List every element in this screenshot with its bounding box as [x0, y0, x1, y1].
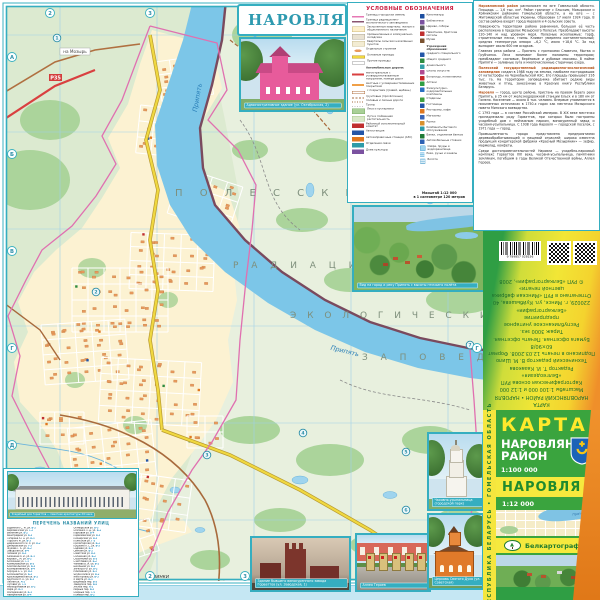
svg-text:Б: Б	[10, 152, 14, 158]
legend-item: Музеи	[420, 39, 468, 44]
photo-caption: Административное здание (ул. Октябрьская…	[244, 102, 342, 108]
district-description-panel: Наровлянский район расположен на юге Гом…	[473, 0, 600, 231]
svg-text:Р35: Р35	[50, 76, 61, 82]
svg-text:2: 2	[94, 290, 97, 296]
memorial-stela	[417, 553, 426, 571]
legend-swatch	[352, 56, 365, 59]
legend-swatch	[352, 116, 365, 122]
legend-item: среднего специального	[420, 53, 468, 58]
town-scale: 1:12 000	[502, 500, 534, 508]
svg-text:2: 2	[148, 574, 152, 580]
cover-town-title: НАРОВЛЯ	[502, 480, 581, 495]
paragraph: Среди достопримечательностей Наровли — у…	[479, 149, 595, 164]
imprint-line: «Белкартография»	[487, 306, 596, 313]
legend-swatch	[352, 74, 364, 76]
legend-swatch	[352, 34, 365, 40]
legend-icon	[420, 109, 425, 114]
belltower-dome	[451, 445, 459, 451]
legend-icon	[420, 20, 425, 25]
legend-swatch	[352, 109, 365, 115]
imprint-line: Масштабы 1:100 000 и 1:12 000	[487, 385, 596, 392]
legend-item: Автозаправочные станции (АЗС)	[352, 136, 416, 141]
photo-brick-ruins: Здание бывшего винокуренного завода Горв…	[250, 536, 351, 592]
photo-belltower: Часовня-усыпальница (городской парк)	[427, 432, 484, 511]
legend-icon	[420, 140, 425, 145]
description-text: Наровлянский район расположен на юге Гом…	[474, 1, 599, 230]
cross-icon	[455, 440, 457, 445]
belltower-top	[450, 449, 463, 463]
legend-swatch	[352, 27, 365, 33]
legend-icon	[420, 103, 425, 108]
legend-item: Учреждения образования:	[420, 44, 468, 51]
svg-text:7: 7	[468, 343, 471, 349]
svg-text:1: 1	[55, 36, 58, 42]
building-roof	[255, 63, 323, 73]
legend-swatch	[352, 48, 364, 53]
legend-item: Отделения связи	[352, 143, 416, 148]
legend-swatch	[352, 84, 364, 86]
legend-item: Кинотеатры	[420, 14, 468, 19]
legend-icon	[420, 26, 425, 31]
aerial-lake	[455, 232, 478, 239]
legend-right-column: Кинотеатры Библиотеки Церкви, соборы Пам…	[420, 14, 468, 165]
belltower-mid	[449, 460, 465, 479]
legend-swatch	[352, 41, 365, 47]
street-index-panel: Усадебный дом Горваттов — памятник архит…	[3, 468, 139, 597]
map-cover: 9 789857 028156 КАРТАНАРОВЛЯНСКИЙ РАЙОН …	[483, 231, 600, 600]
svg-text:на Мозырь: на Мозырь	[63, 49, 87, 54]
region-spine: РЕСПУБЛИКА БЕЛАРУСЬ • ГОМЕЛЬСКАЯ ОБЛАСТЬ	[483, 410, 496, 600]
legend-swatch	[352, 137, 364, 142]
svg-text:Д: Д	[10, 443, 15, 449]
legend-item: Больницы, поликлиники	[420, 76, 468, 81]
paragraph: Полесский государственный радиационно-эк…	[479, 67, 595, 90]
legend-swatch	[352, 106, 364, 107]
legend-item: Автостанция	[352, 130, 416, 135]
imprint-line: Отпечатано в РУП «Минская фабрика цветно…	[487, 284, 596, 299]
street-entry: Набережная ул. В-4	[7, 594, 69, 597]
barcode: 9 789857 028156	[499, 241, 541, 261]
svg-text:3: 3	[205, 453, 208, 459]
legend-item: с покрытием (гравий, щебень)	[352, 90, 416, 95]
legend-icon	[420, 76, 425, 81]
photo-caption: Аллея Героев	[360, 582, 430, 588]
mansion-windows	[18, 497, 126, 507]
reserve-label-3: Э К О Л О Г И Ч Е С К И Й	[290, 309, 508, 321]
legend-swatch	[352, 66, 364, 71]
memorial-stela	[392, 553, 401, 571]
street-entry: Новая ул. Б-2	[7, 596, 69, 597]
front-cover: РЕСПУБЛИКА БЕЛАРУСЬ • ГОМЕЛЬСКАЯ ОБЛАСТЬ…	[483, 410, 600, 600]
street-entry: Полевой пер. Б-2	[74, 594, 136, 597]
legend-swatch	[352, 91, 365, 94]
legend-item: Рестораны, кафе	[420, 109, 468, 114]
legend-icon	[420, 53, 425, 58]
memorial-stela	[405, 553, 414, 571]
photo-caption: Церковь Святого Духа (ул. Советская)	[432, 577, 484, 586]
legend-icon	[420, 121, 425, 126]
thumbnail-park	[500, 526, 518, 534]
photo-memorial-alley: Аллея Героев	[355, 533, 431, 592]
qr-code	[547, 241, 571, 265]
title-block: НАРОВЛЯ	[237, 4, 347, 36]
back-cover: 9 789857 028156 КАРТАНАРОВЛЯНСКИЙ РАЙОН …	[483, 231, 600, 412]
legend-item: Границы городских земель	[352, 14, 416, 18]
legend-item: Озёра, пруды и водохранилища	[420, 145, 468, 151]
legend-icon	[420, 145, 426, 151]
legend-item: дошкольного	[420, 64, 468, 69]
memorial-stela	[366, 553, 375, 571]
legend-item: Магазины	[420, 115, 468, 120]
legend-item: Районный исполнительный комитет	[352, 123, 416, 129]
cover-karta-title: КАРТА	[501, 414, 588, 436]
panorama-roofs	[527, 573, 532, 576]
map-scale-note: Масштаб 1:12 000 в 1 сантиметре 120 метр…	[413, 191, 465, 199]
svg-text:5: 5	[404, 450, 407, 456]
photo-aerial-view: Вид на город и реку Припять с высоты пти…	[352, 205, 485, 292]
memorial-stela	[379, 553, 388, 571]
legend-icon	[420, 127, 425, 132]
paragraph: Главная река района — Припять с притокам…	[479, 50, 595, 65]
street-entry: Речной пер. В-4	[74, 596, 136, 597]
legend-item: Тропы	[352, 104, 416, 107]
photo-church: Церковь Святого Духа (ул. Советская)	[427, 513, 484, 590]
belltower-base	[446, 476, 467, 498]
legend-item: Физкультурно-оздоровительные комплексы	[420, 87, 468, 96]
legend-swatch	[352, 131, 364, 136]
legend-panel: УСЛОВНЫЕ ОБОЗНАЧЕНИЯ Границы городских з…	[347, 2, 473, 203]
photo-mansion: Усадебный дом Горваттов — памятник архит…	[7, 471, 137, 519]
legend-icon	[420, 82, 425, 87]
legend-item: Аптеки	[420, 82, 468, 87]
tree	[464, 515, 484, 547]
legend-item: Автомобильные дороги:	[352, 66, 416, 71]
legend-item: Церкви, соборы	[420, 26, 468, 31]
photo-admin-building: Административное здание (ул. Октябрьская…	[239, 37, 346, 112]
legend-item: Дома культуры	[352, 149, 416, 154]
building-tower	[272, 56, 288, 89]
legend-icon	[420, 153, 425, 158]
cover-district-title: НАРОВЛЯНСКИЙ РАЙОН	[501, 438, 581, 462]
svg-text:6: 6	[404, 508, 407, 514]
photo-caption: Усадебный дом Горваттов — памятник архит…	[10, 512, 95, 517]
legend-icon	[420, 70, 425, 75]
street-index-header: ПЕРЕЧЕНЬ НАЗВАНИЙ УЛИЦ	[7, 521, 135, 526]
legend-item: Стадионы	[420, 98, 468, 103]
imprint-line: Технический редактор В. М. Шило	[487, 356, 596, 363]
legend-item: Кварталы сельских населённых пунктов	[352, 41, 416, 47]
photo-caption: Здание бывшего винокуренного завода Горв…	[255, 579, 347, 588]
legend-item: Банки, отделения банков	[420, 134, 468, 139]
legend-item: Гостиницы	[420, 103, 468, 108]
legend-icon	[420, 44, 425, 49]
legend-item: Автомобильные стоянки	[420, 140, 468, 145]
legend-icon	[420, 58, 425, 63]
legend-swatch	[352, 143, 364, 148]
legend-swatch	[352, 123, 364, 128]
legend-item: Основные проезды	[352, 54, 416, 59]
legend-icon	[420, 134, 425, 139]
svg-text:В: В	[10, 249, 14, 255]
legend-icon	[420, 158, 426, 164]
legend-item: Граница радиационно-экологического запов…	[352, 19, 416, 25]
qr-code	[573, 241, 597, 265]
legend-item: Леса и кустарники	[352, 108, 416, 114]
imprint-line: КАРТА	[487, 400, 596, 407]
legend-swatch	[352, 21, 364, 23]
legend-item: общего среднего	[420, 58, 468, 63]
church-tower	[449, 532, 461, 546]
legend-item: промышленные и коммунально-складские	[352, 33, 416, 39]
legend-icon	[420, 39, 425, 44]
legend-item: Памятники, братские могилы	[420, 31, 468, 37]
street-index-col2: Октябрьская ул. В-3Осипенко П. Д. ул. В-…	[74, 527, 136, 597]
legend-item: Отдельные строения	[352, 48, 416, 53]
imprint-line: Картографическая основа РУП «Белгеодезия…	[487, 371, 596, 386]
imprint-line: НАРОВЛЯНСКИЙ РАЙОН • НАРОВЛЯ	[487, 393, 596, 400]
imprint-text: КАРТАНАРОВЛЯНСКИЙ РАЙОН • НАРОВЛЯМасштаб…	[487, 267, 596, 407]
svg-text:А: А	[10, 55, 14, 61]
legend-icon	[420, 14, 425, 19]
paragraph: Наровля — город, центр района, пристань …	[479, 91, 595, 110]
page-title: НАРОВЛЯ	[248, 11, 345, 29]
legend-icon	[420, 115, 425, 120]
legend-left-column: Границы городских земель Граница радиаци…	[352, 14, 416, 165]
legend-icon	[420, 98, 425, 103]
legend-icon	[420, 31, 425, 36]
legend-swatch	[352, 102, 364, 103]
legend-item: полевые и лесные дороги	[352, 100, 416, 103]
paragraph: Промышленность города представлена предп…	[479, 132, 595, 147]
legend-icon	[420, 64, 425, 69]
legend-icon	[420, 87, 425, 92]
street-index-col1: Будённого С. М. ул. В-2Вербовичская ул. …	[7, 527, 69, 597]
imprint-line: © РУП «Белкартография», 2008	[487, 277, 596, 284]
photo-caption: Часовня-усыпальница (городской парк)	[432, 498, 484, 507]
legend-item: магистральные с усовершенствованным покр…	[352, 72, 416, 81]
imprint-line: Редактор Т. И. Казакова	[487, 364, 596, 371]
legend-item: грунтовые (просёлочные)	[352, 95, 416, 98]
svg-text:4: 4	[301, 431, 304, 437]
imprint-line: 220029, г. Минск, ул. Куйбышева, 40	[487, 298, 596, 305]
legend-swatch	[352, 97, 364, 98]
legend-item: Застроенные кварталы: жилые и общественн…	[352, 26, 416, 32]
legend-item: Рынки	[420, 121, 468, 126]
legend-item: Библиотеки	[420, 20, 468, 25]
aerial-roofs	[393, 257, 398, 260]
barcode-bars	[501, 242, 539, 255]
imprint-line: Бумага офсетная. Печать офсетная. Тираж …	[487, 327, 596, 342]
legend-item: школы искусств	[420, 70, 468, 75]
photo-caption: Вид на город и реку Припять с высоты пти…	[357, 282, 478, 288]
legend-item: местные с усовершенствованным покрытием	[352, 82, 416, 88]
svg-text:2: 2	[48, 11, 52, 17]
paragraph: С 1793 года — в составе Российской импер…	[479, 112, 595, 131]
paragraph: Поверхность территории района равнинная,…	[479, 25, 595, 48]
legend-item: Комбинаты бытового обслуживания	[420, 127, 468, 133]
barcode-number: 9 789857 028156	[501, 255, 539, 259]
belkartografia-logo	[504, 540, 521, 551]
imprint-line: Подписано в печать 12.03.2008. Формат 60…	[487, 342, 596, 357]
legend-swatch	[352, 16, 364, 18]
svg-text:3: 3	[243, 574, 247, 580]
imprint-line: Республиканское унитарное предприятие	[487, 313, 596, 328]
district-scale: 1:100 000	[501, 466, 538, 474]
windows	[266, 87, 270, 94]
legend-swatch	[352, 62, 365, 65]
legend-item: Реки, ручьи и каналы	[420, 153, 468, 158]
paragraph: Наровлянский район расположен на юге Гом…	[479, 5, 595, 24]
legend-item: Прочие проезды	[352, 60, 416, 65]
map-sheet: П О Л Е С С К И Й Р А Д И А Ц И О Н Н О …	[0, 0, 600, 600]
svg-text:3: 3	[148, 11, 152, 17]
legend-title: УСЛОВНЫЕ ОБОЗНАЧЕНИЯ	[352, 6, 468, 12]
legend-swatch	[352, 149, 364, 154]
legend-item: Луга и пойменная растительность	[352, 115, 416, 121]
church-windows	[440, 565, 444, 572]
region-spine-label: РЕСПУБЛИКА БЕЛАРУСЬ • ГОМЕЛЬСКАЯ ОБЛАСТЬ	[487, 402, 493, 600]
legend-item: Болота	[420, 158, 468, 164]
